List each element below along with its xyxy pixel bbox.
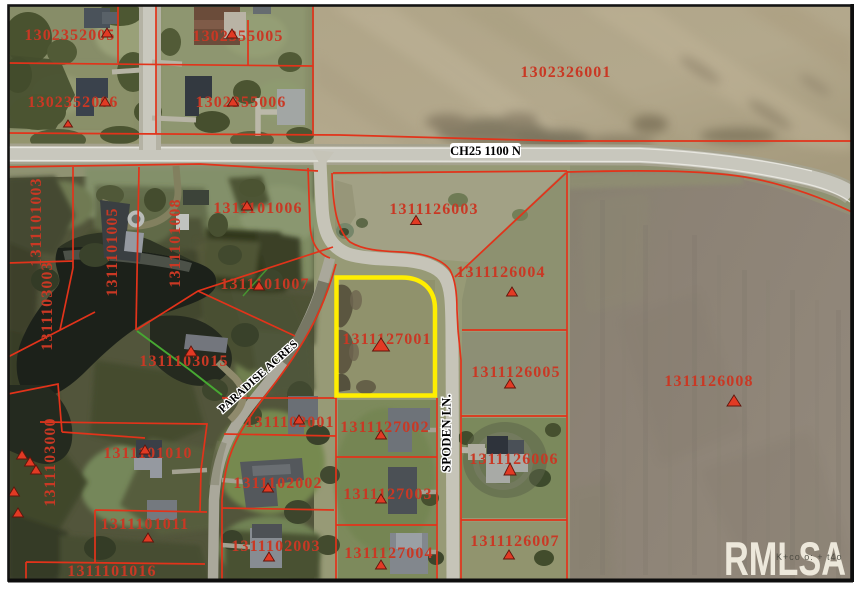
svg-text:1311101003: 1311101003 [28,177,45,266]
svg-text:1311126007: 1311126007 [470,533,559,550]
svg-text:1311127002: 1311127002 [340,419,429,436]
svg-text:1311127004: 1311127004 [344,545,433,562]
svg-text:SPODEN LN.: SPODEN LN. [440,394,454,472]
svg-text:1302355006: 1302355006 [196,94,287,111]
svg-text:1311103000: 1311103000 [42,417,59,506]
svg-text:1311101006: 1311101006 [213,200,302,217]
svg-text:1311103015: 1311103015 [139,353,228,370]
svg-text:1302355005: 1302355005 [193,28,284,45]
svg-text:K+co o: + t4o: K+co o: + t4o [776,552,843,562]
svg-text:1302352005: 1302352005 [25,27,116,44]
svg-text:1311102002: 1311102002 [233,475,322,492]
svg-text:1311101005: 1311101005 [104,207,121,296]
svg-text:1311126005: 1311126005 [471,364,560,381]
svg-text:1311126003: 1311126003 [389,201,478,218]
svg-text:1311126008: 1311126008 [664,373,753,390]
svg-text:1311102003: 1311102003 [231,538,320,555]
svg-text:1311126004: 1311126004 [456,264,545,281]
svg-text:1311101016: 1311101016 [67,563,156,580]
svg-text:1311101011: 1311101011 [101,516,189,533]
svg-text:CH25 1100 N: CH25 1100 N [450,144,521,158]
svg-text:1311126006: 1311126006 [469,451,558,468]
svg-text:1311127001: 1311127001 [342,331,431,348]
svg-text:1302326001: 1302326001 [521,64,612,81]
svg-text:1311127003: 1311127003 [343,486,432,503]
svg-text:1311101008: 1311101008 [167,198,184,287]
svg-text:1311103003: 1311103003 [39,261,56,350]
svg-text:1311102001: 1311102001 [245,414,334,431]
